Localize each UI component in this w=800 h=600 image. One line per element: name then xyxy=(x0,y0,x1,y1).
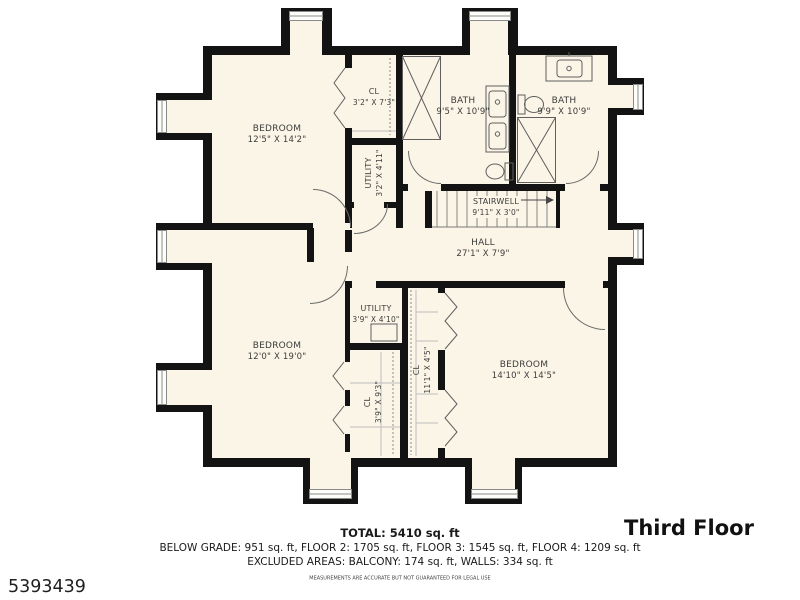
door-gap-bath-right xyxy=(565,184,600,191)
door-gap-utility-bottom xyxy=(352,280,376,288)
window-bay-right-1 xyxy=(633,84,643,110)
window-chimney-left xyxy=(289,11,323,21)
wall-hall-west-stub xyxy=(307,228,314,262)
excluded-areas: EXCLUDED AREAS: BALCONY: 174 sq. ft, WAL… xyxy=(0,555,800,569)
bay-bottom-1-interior xyxy=(310,452,351,491)
window-bay-left-2 xyxy=(157,230,167,263)
room-dims: 11'1" X 4'5" xyxy=(422,346,433,393)
area-summary: TOTAL: 5410 sq. ft BELOW GRADE: 951 sq. … xyxy=(0,526,800,569)
window-bay-left-3 xyxy=(157,370,167,405)
label-hall: HALL 27'1" X 7'9" xyxy=(438,237,528,261)
floor-areas: BELOW GRADE: 951 sq. ft, FLOOR 2: 1705 s… xyxy=(0,541,800,555)
wall-tick xyxy=(610,194,613,197)
wall-tick xyxy=(515,460,518,463)
room-dims: 12'0" X 19'0" xyxy=(248,352,307,363)
listing-id: 5393439 xyxy=(8,577,86,597)
room-dims: 9'11" X 3'0" xyxy=(470,207,521,218)
room-name: UTILITY xyxy=(363,157,374,188)
wall-tick xyxy=(551,50,554,53)
label-utility-bottom: UTILITY 3'9" X 4'10" xyxy=(336,303,416,325)
label-bath-right: BATH 9'9" X 10'9" xyxy=(524,95,604,119)
room-name: UTILITY xyxy=(360,303,391,314)
room-name: BEDROOM xyxy=(253,341,301,352)
room-name: CL xyxy=(411,365,422,375)
room-name: CL xyxy=(362,397,373,407)
window-bay-left-1 xyxy=(157,100,167,133)
label-bath-left: BATH 9'5" X 10'9" xyxy=(423,95,503,119)
bifold-gap-closet-bl-2 xyxy=(344,406,351,434)
chimney-right-interior xyxy=(470,19,508,59)
wall-tick xyxy=(388,50,391,53)
wall-tick xyxy=(206,321,209,324)
room-name: BATH xyxy=(451,96,476,107)
room-name: HALL xyxy=(471,238,495,249)
label-bedroom-bottom-right: BEDROOM 14'10" X 14'5" xyxy=(464,359,584,383)
bay-left-3-interior xyxy=(163,370,215,405)
bay-left-1-interior xyxy=(163,100,215,133)
door-gap-bedroom-br xyxy=(565,281,603,288)
room-dims: 3'2" X 4'11" xyxy=(374,149,385,196)
window-bay-bottom-2 xyxy=(471,489,518,499)
bifold-gap-closet-bl-1 xyxy=(344,362,351,390)
label-stairwell: STAIRWELL 9'11" X 3'0" xyxy=(456,196,536,218)
room-name: BEDROOM xyxy=(500,360,548,371)
label-closet-top: CL 3'2" X 7'3" xyxy=(339,86,409,108)
label-closet-bottom-mid: CL 11'1" X 4'5" xyxy=(411,334,433,406)
room-dims: 14'10" X 14'5" xyxy=(492,371,556,382)
label-bedroom-top-left: BEDROOM 12'5" X 14'2" xyxy=(222,123,332,147)
room-dims: 3'9" X 9'3" xyxy=(373,381,384,423)
room-name: BEDROOM xyxy=(253,124,301,135)
room-hall-nook-left xyxy=(403,191,425,228)
wall-tick xyxy=(299,460,302,463)
chimney-left-interior xyxy=(290,19,322,59)
room-name: CL xyxy=(369,86,379,97)
room-hall-nook-right xyxy=(560,191,608,228)
room-name: BATH xyxy=(552,96,577,107)
wall-hall-west-upper xyxy=(345,230,352,252)
wall-tick xyxy=(250,224,253,227)
floor-plan-page: BEDROOM 12'5" X 14'2" CL 3'2" X 7'3" UTI… xyxy=(0,0,800,600)
bifold-gap-closet-mid-2 xyxy=(438,390,445,448)
bay-bottom-2-interior xyxy=(472,452,515,491)
label-bedroom-bottom-left: BEDROOM 12'0" X 19'0" xyxy=(222,340,332,364)
room-dims: 9'5" X 10'9" xyxy=(436,107,489,118)
room-dims: 3'2" X 7'3" xyxy=(353,97,395,108)
bay-left-2-interior xyxy=(163,230,215,263)
bifold-gap-closet-mid-1 xyxy=(438,293,445,350)
door-gap-bath-left xyxy=(408,184,441,191)
room-dims: 3'9" X 4'10" xyxy=(352,314,399,325)
room-dims: 9'9" X 10'9" xyxy=(537,107,590,118)
room-dims: 27'1" X 7'9" xyxy=(456,249,509,260)
window-chimney-right xyxy=(469,11,511,21)
label-closet-bottom-left: CL 3'9" X 9'3" xyxy=(362,367,384,437)
window-bay-bottom-1 xyxy=(309,489,352,499)
total-area: TOTAL: 5410 sq. ft xyxy=(0,526,800,541)
disclaimer-text: MEASUREMENTS ARE ACCURATE BUT NOT GUARAN… xyxy=(152,575,648,581)
label-utility-top: UTILITY 3'2" X 4'11" xyxy=(363,143,385,203)
window-bay-right-2 xyxy=(633,229,643,259)
room-name: STAIRWELL xyxy=(471,196,521,207)
room-dims: 12'5" X 14'2" xyxy=(248,135,307,146)
